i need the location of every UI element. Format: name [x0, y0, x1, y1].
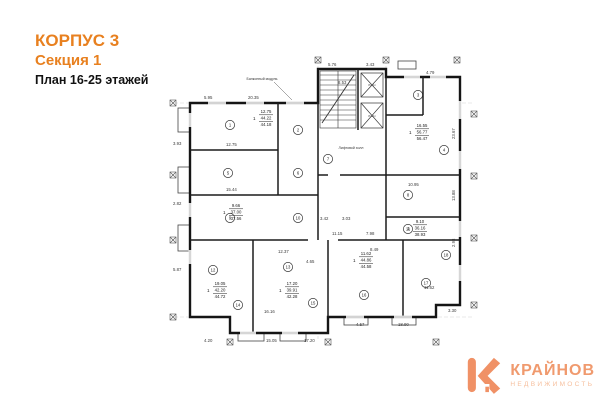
svg-text:56.77: 56.77 [417, 130, 428, 135]
dimension-label: 23.67 [451, 128, 456, 139]
dimension-label: 17.20 [304, 338, 315, 343]
dimension-label: 3.93 [173, 141, 182, 146]
logo-tagline: НЕДВИЖИМОСТЬ [510, 381, 595, 388]
svg-text:42.20: 42.20 [215, 288, 226, 293]
dimension-label: 12.37 [278, 249, 289, 254]
floor-plan: Лифт Лифт Лифтовой холл Балконный модуль [168, 55, 480, 347]
lift-label: Лифт [368, 114, 376, 118]
section-title: Секция 1 [35, 52, 149, 71]
dimension-label: 2.98 [451, 238, 456, 247]
svg-text:14: 14 [236, 303, 241, 308]
dimension-label: 7.98 [366, 231, 375, 236]
svg-text:1: 1 [253, 116, 256, 121]
building-footprint [190, 69, 460, 333]
svg-text:1: 1 [207, 288, 210, 293]
dimension-label: 5.76 [328, 62, 337, 67]
title-block: КОРПУС 3 Секция 1 План 16-25 этажей [35, 30, 149, 89]
svg-text:1: 1 [409, 130, 412, 135]
svg-text:1: 1 [223, 210, 226, 215]
dimension-label: 5.87 [173, 267, 182, 272]
dimension-label: 12.75 [226, 142, 237, 147]
svg-text:37.00: 37.00 [231, 210, 242, 215]
svg-text:1: 1 [407, 226, 410, 231]
dimension-label: 3.43 [366, 62, 375, 67]
svg-text:1: 1 [353, 258, 356, 263]
svg-text:9.10: 9.10 [416, 219, 425, 224]
dimension-label: 4.20 [204, 338, 213, 343]
svg-text:1: 1 [279, 288, 282, 293]
svg-text:38.93: 38.93 [415, 232, 426, 237]
svg-text:17.20: 17.20 [287, 281, 298, 286]
svg-text:10: 10 [296, 216, 301, 221]
logo-k-icon [466, 353, 502, 397]
floor-plan-drawing: Лифт Лифт Лифтовой холл Балконный модуль [168, 55, 480, 347]
svg-text:56.47: 56.47 [417, 136, 428, 141]
dimension-label: 4.79 [426, 70, 435, 75]
leader-line [274, 82, 292, 100]
floors-subtitle: План 16-25 этажей [35, 73, 149, 89]
dimension-label: 13.88 [451, 190, 456, 201]
svg-text:36.16: 36.16 [415, 226, 426, 231]
svg-text:39.91: 39.91 [287, 288, 298, 293]
dimension-label: 4.65 [306, 259, 315, 264]
svg-text:15: 15 [311, 301, 316, 306]
dimension-label: 20.35 [248, 95, 259, 100]
dimension-label: 4.57 [356, 322, 365, 327]
dimension-label: 18.90 [398, 322, 409, 327]
dimension-label: 3.03 [342, 216, 351, 221]
building-title: КОРПУС 3 [35, 30, 149, 51]
svg-text:12.75: 12.75 [261, 109, 272, 114]
dimension-label: 8.53 [338, 80, 347, 85]
lift-hall-label: Лифтовой холл [339, 146, 364, 150]
svg-text:44.18: 44.18 [261, 122, 272, 127]
svg-text:42.28: 42.28 [287, 294, 298, 299]
svg-text:13: 13 [286, 265, 291, 270]
dimension-label: 10.95 [408, 182, 419, 187]
svg-text:18: 18 [444, 253, 449, 258]
dimension-label: 15.05 [266, 338, 277, 343]
dimension-label: 3.42 [320, 216, 329, 221]
brochure-page: КОРПУС 3 Секция 1 План 16-25 этажей [0, 0, 605, 403]
svg-text:16.55: 16.55 [417, 123, 428, 128]
svg-text:19.05: 19.05 [215, 281, 226, 286]
svg-text:12: 12 [211, 268, 216, 273]
svg-text:44.72: 44.72 [215, 294, 226, 299]
dimension-label: 15.44 [226, 187, 237, 192]
dimension-label: 5.95 [204, 95, 213, 100]
svg-text:44.22: 44.22 [261, 116, 272, 121]
dimension-label: 3.30 [448, 308, 457, 313]
lift-label: Лифт [368, 83, 376, 87]
dimension-label: 16.16 [264, 309, 275, 314]
company-logo: КРАЙНОВ НЕДВИЖИМОСТЬ [466, 353, 595, 397]
dimension-label: 11.15 [332, 231, 343, 236]
svg-text:9.66: 9.66 [232, 203, 241, 208]
svg-text:37.56: 37.56 [231, 216, 242, 221]
svg-text:44.58: 44.58 [361, 264, 372, 269]
logo-brand-name: КРАЙНОВ [510, 363, 595, 379]
logo-text: КРАЙНОВ НЕДВИЖИМОСТЬ [510, 363, 595, 388]
balcony-module-label: Балконный модуль [247, 77, 278, 81]
dimension-label: 8.49 [370, 247, 379, 252]
dimension-label: 2.82 [173, 201, 182, 206]
svg-text:44.86: 44.86 [361, 258, 372, 263]
dimension-label: 11.62 [424, 285, 435, 290]
svg-text:16: 16 [362, 293, 367, 298]
